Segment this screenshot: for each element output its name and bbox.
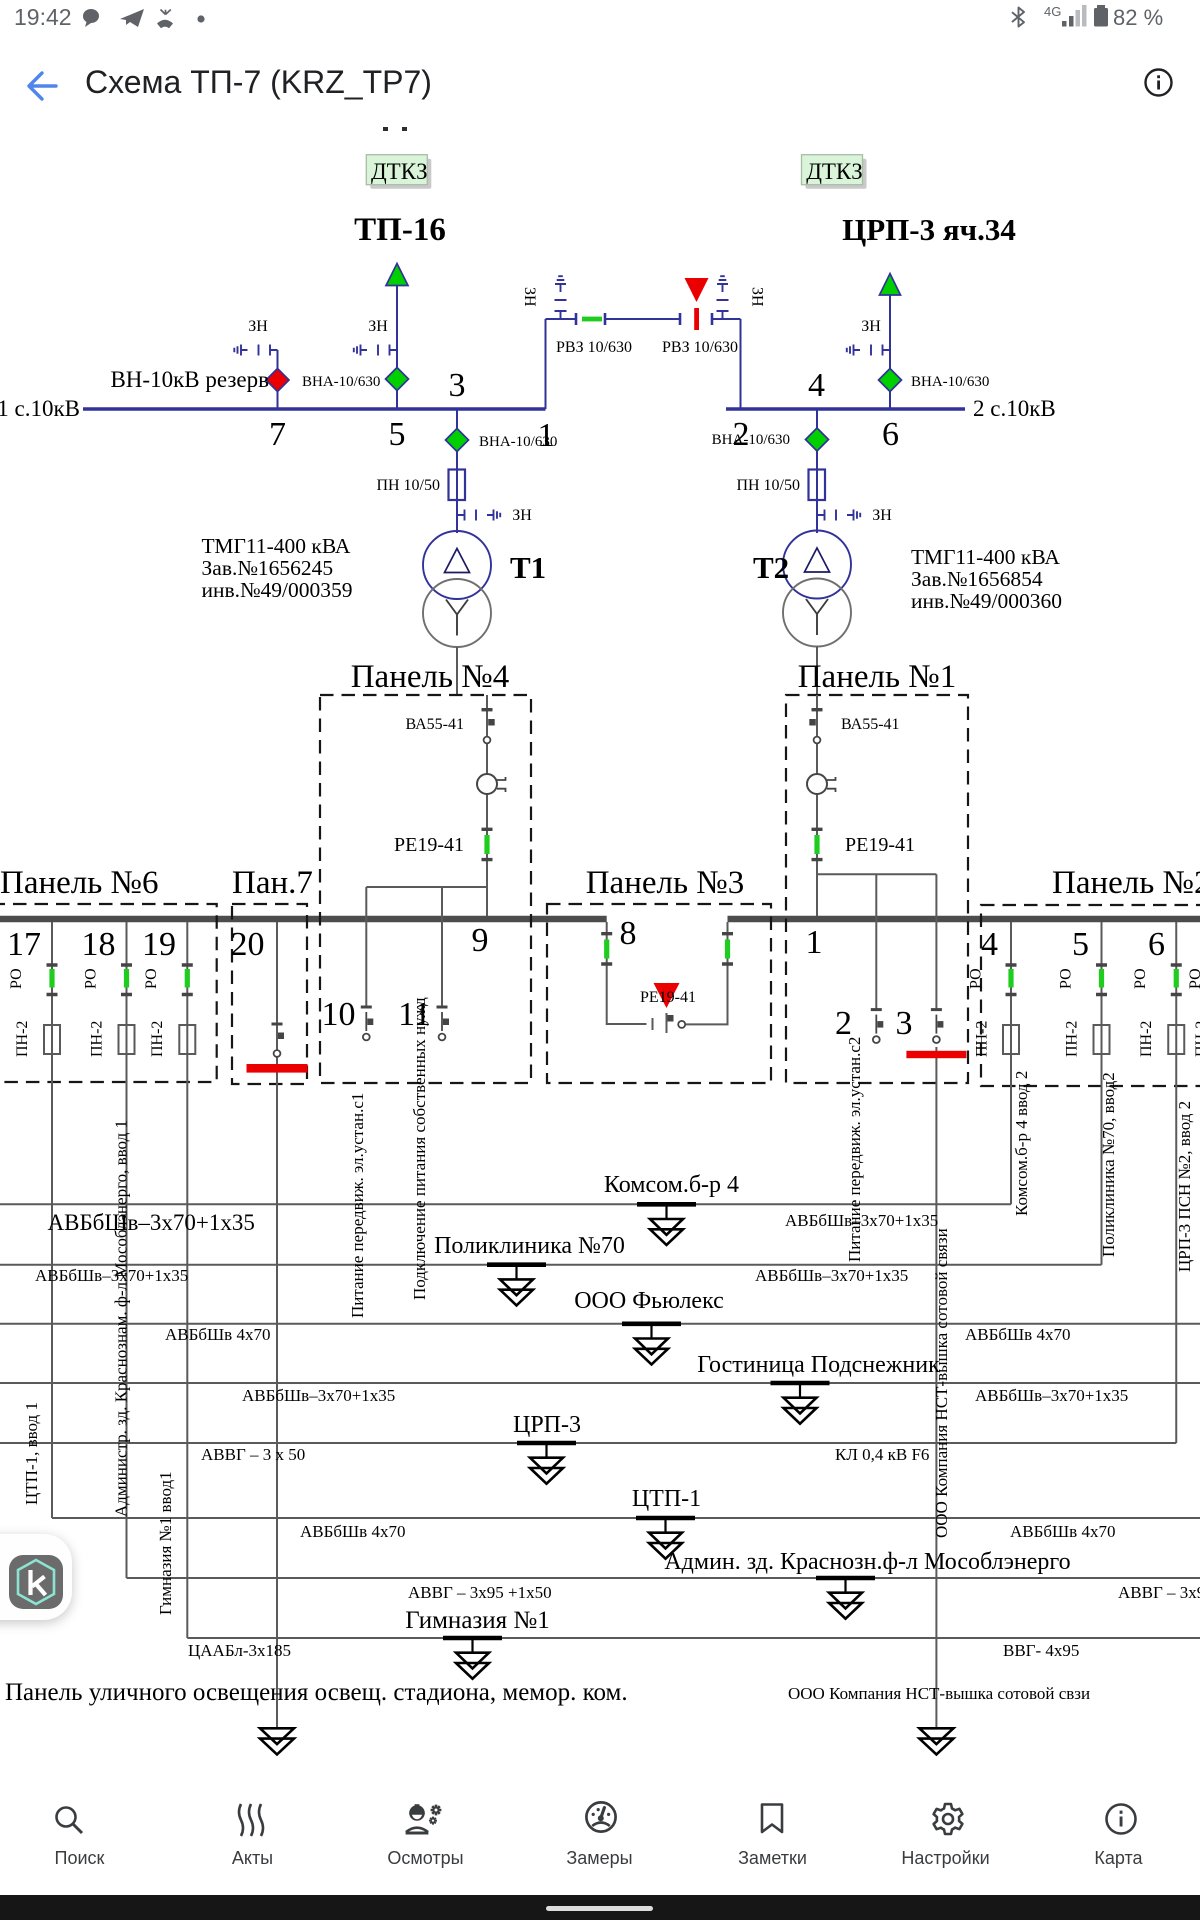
svg-text:7: 7 (269, 416, 286, 453)
svg-text:ВА55-41: ВА55-41 (405, 716, 464, 733)
svg-text:Гимназия №1 ввод1: Гимназия №1 ввод1 (156, 1471, 175, 1615)
svg-text:ЦРП-3 ПСН №2, ввод 2: ЦРП-3 ПСН №2, ввод 2 (1175, 1101, 1194, 1272)
svg-text:ВНА-10/630: ВНА-10/630 (712, 432, 790, 448)
svg-text:ПН-2: ПН-2 (149, 1021, 166, 1057)
svg-text:Т2: Т2 (753, 550, 789, 585)
svg-text:Панель уличного освещения осве: Панель уличного освещения освещ. стадион… (5, 1679, 628, 1706)
svg-text:ЗН: ЗН (512, 507, 532, 524)
svg-text:Зав.№1656854: Зав.№1656854 (911, 567, 1043, 591)
svg-text:РО: РО (968, 968, 985, 989)
svg-text:ВА55-41: ВА55-41 (841, 716, 900, 733)
svg-text:ТП-16: ТП-16 (354, 212, 446, 248)
svg-text:3: 3 (449, 367, 466, 404)
svg-text:РО: РО (8, 968, 25, 989)
svg-text:Панель №2: Панель №2 (1052, 865, 1200, 901)
svg-text:ПН-2: ПН-2 (14, 1021, 31, 1057)
svg-text:1 с.10кВ: 1 с.10кВ (0, 396, 80, 421)
svg-text:Подключение питания собственны: Подключение питания собственных нужд (410, 997, 429, 1300)
svg-text:РЕ19-41: РЕ19-41 (394, 834, 464, 856)
svg-text:Админ. зд. Краснозн.ф-л Мособл: Админ. зд. Краснозн.ф-л Мособлэнерго (664, 1549, 1070, 1575)
svg-text:ЦТП-1, ввод 1: ЦТП-1, ввод 1 (22, 1402, 41, 1505)
svg-text:3: 3 (896, 1005, 913, 1042)
svg-text:ПН-2: ПН-2 (1138, 1021, 1155, 1057)
svg-text:Панель №1: Панель №1 (798, 659, 957, 695)
svg-text:Панель №4: Панель №4 (351, 659, 510, 695)
svg-text:ТМГ11-400 кВА: ТМГ11-400 кВА (911, 545, 1060, 569)
svg-text:5: 5 (1072, 926, 1089, 963)
svg-text:ПН-2: ПН-2 (1064, 1021, 1081, 1057)
svg-text:ПН-2: ПН-2 (89, 1021, 106, 1057)
svg-text:ЗН: ЗН (368, 318, 388, 335)
svg-text:Панель №3: Панель №3 (586, 865, 745, 901)
svg-text:ДТКЗ: ДТКЗ (806, 159, 863, 184)
svg-text:Питание передвиж. эл.устан.с1: Питание передвиж. эл.устан.с1 (348, 1093, 367, 1318)
svg-text:1: 1 (538, 417, 555, 454)
svg-text:АВБбШв 4х70: АВБбШв 4х70 (300, 1522, 405, 1541)
svg-text:Комсом.б-р 4: Комсом.б-р 4 (604, 1172, 739, 1198)
svg-text:АВВГ – 3х95 +1х50: АВВГ – 3х95 +1х50 (408, 1583, 552, 1602)
svg-text:инв.№49/000360: инв.№49/000360 (911, 589, 1062, 613)
svg-text:17: 17 (7, 926, 41, 963)
svg-text:АВБбШв 4х70: АВБбШв 4х70 (165, 1325, 270, 1344)
svg-text:2 с.10кВ: 2 с.10кВ (973, 396, 1056, 421)
svg-text:АВБбШв–3х70+1х35: АВБбШв–3х70+1х35 (785, 1211, 938, 1230)
svg-text:ПН 10/50: ПН 10/50 (736, 477, 800, 494)
svg-text:КЛ 0,4 кВ F6: КЛ 0,4 кВ F6 (835, 1445, 929, 1464)
svg-text:ООО Компания НСТ-вышка сотовой: ООО Компания НСТ-вышка сотовой свзи (788, 1684, 1090, 1703)
svg-text:АВБбШв–3х70+1х35: АВБбШв–3х70+1х35 (48, 1210, 255, 1235)
svg-text:АВБбШв–3х70+1х35: АВБбШв–3х70+1х35 (35, 1266, 188, 1285)
svg-text:АВБбШв–3х70+1х35: АВБбШв–3х70+1х35 (755, 1266, 908, 1285)
svg-text:РЕ19-41: РЕ19-41 (640, 989, 696, 1006)
svg-text:АВВГ – 3х95 +1х50: АВВГ – 3х95 +1х50 (1118, 1583, 1200, 1602)
svg-text:Поликлиника №70, ввод2: Поликлиника №70, ввод2 (1099, 1072, 1118, 1257)
svg-text:4: 4 (981, 926, 998, 963)
svg-text:АВБбШв 4х70: АВБбШв 4х70 (965, 1325, 1070, 1344)
svg-text:19: 19 (142, 926, 176, 963)
svg-text:ЗН: ЗН (749, 287, 766, 307)
svg-text:ВНА-10/630: ВНА-10/630 (302, 374, 380, 390)
svg-text:9: 9 (472, 922, 489, 959)
svg-text:2: 2 (835, 1005, 852, 1042)
svg-text:ЗН: ЗН (861, 318, 881, 335)
svg-text:РО: РО (1187, 968, 1200, 989)
svg-text:ООО Фьюлекс: ООО Фьюлекс (574, 1288, 724, 1314)
svg-text:18: 18 (82, 926, 116, 963)
svg-text:ЗН: ЗН (872, 507, 892, 524)
svg-text:10: 10 (322, 996, 356, 1033)
svg-text:Зав.№1656245: Зав.№1656245 (202, 556, 334, 580)
svg-text:РО: РО (1058, 968, 1075, 989)
svg-text:Поликлиника №70: Поликлиника №70 (434, 1233, 625, 1259)
svg-text:ВН-10кВ резерв: ВН-10кВ резерв (110, 367, 269, 392)
svg-text:АВБбШв–3х70+1х35: АВБбШв–3х70+1х35 (975, 1386, 1128, 1405)
svg-text:Комсом.б-р 4 ввод 2: Комсом.б-р 4 ввод 2 (1012, 1071, 1031, 1216)
svg-text:8: 8 (620, 915, 637, 952)
svg-text:ЦРП-3: ЦРП-3 (513, 1412, 581, 1438)
svg-text:ЦТП-1: ЦТП-1 (632, 1486, 701, 1512)
svg-text:инв.№49/000359: инв.№49/000359 (202, 578, 353, 602)
svg-text:ТМГ11-400 кВА: ТМГ11-400 кВА (202, 534, 351, 558)
svg-text:Т1: Т1 (510, 550, 546, 585)
svg-text:Гостиница Подснежник: Гостиница Подснежник (697, 1352, 940, 1378)
svg-text:АВВГ – 3 х 50: АВВГ – 3 х 50 (201, 1445, 305, 1464)
svg-text:ВВГ- 4х95: ВВГ- 4х95 (1003, 1641, 1079, 1660)
svg-text:Пан.7: Пан.7 (232, 865, 313, 901)
svg-text:Панель №6: Панель №6 (0, 865, 159, 901)
svg-text:5: 5 (389, 416, 406, 453)
svg-text:6: 6 (882, 416, 899, 453)
svg-text:6: 6 (1148, 926, 1165, 963)
svg-text:Администр. зд. Краснознам. ф-л: Администр. зд. Краснознам. ф-л Мособлэне… (112, 1120, 131, 1517)
svg-text:4: 4 (808, 367, 825, 404)
svg-text:РО: РО (1132, 968, 1149, 989)
svg-text:ВНА-10/630: ВНА-10/630 (911, 374, 989, 390)
svg-text:20: 20 (231, 926, 265, 963)
svg-text:ЦРП-3 яч.34: ЦРП-3 яч.34 (842, 212, 1016, 247)
svg-text:РВЗ 10/630: РВЗ 10/630 (556, 339, 632, 356)
svg-text:РО: РО (83, 968, 100, 989)
svg-text:ЗН: ЗН (521, 287, 538, 307)
svg-text:РЕ19-41: РЕ19-41 (845, 834, 915, 856)
svg-text:ЗН: ЗН (248, 318, 268, 335)
svg-text:4G: 4G (1044, 5, 1061, 19)
svg-text:ПН 10/50: ПН 10/50 (376, 477, 440, 494)
svg-text:ДТКЗ: ДТКЗ (371, 159, 428, 184)
svg-text:ООО Компания НСТ-вышка сотовой: ООО Компания НСТ-вышка сотовой связи (932, 1228, 951, 1538)
svg-text:ПН-2: ПН-2 (974, 1021, 991, 1057)
svg-text:1: 1 (806, 924, 823, 961)
svg-text:2: 2 (733, 416, 750, 453)
svg-text:РО: РО (143, 968, 160, 989)
svg-text:Гимназия №1: Гимназия №1 (405, 1607, 550, 1634)
svg-text:ПН-2: ПН-2 (1193, 1021, 1200, 1057)
svg-text:АВБбШв–3х70+1х35: АВБбШв–3х70+1х35 (242, 1386, 395, 1405)
svg-text:РВЗ 10/630: РВЗ 10/630 (662, 339, 738, 356)
svg-text:ЦААБл-3х185: ЦААБл-3х185 (188, 1641, 291, 1660)
svg-text:АВБбШв 4х70: АВБбШв 4х70 (1010, 1522, 1115, 1541)
